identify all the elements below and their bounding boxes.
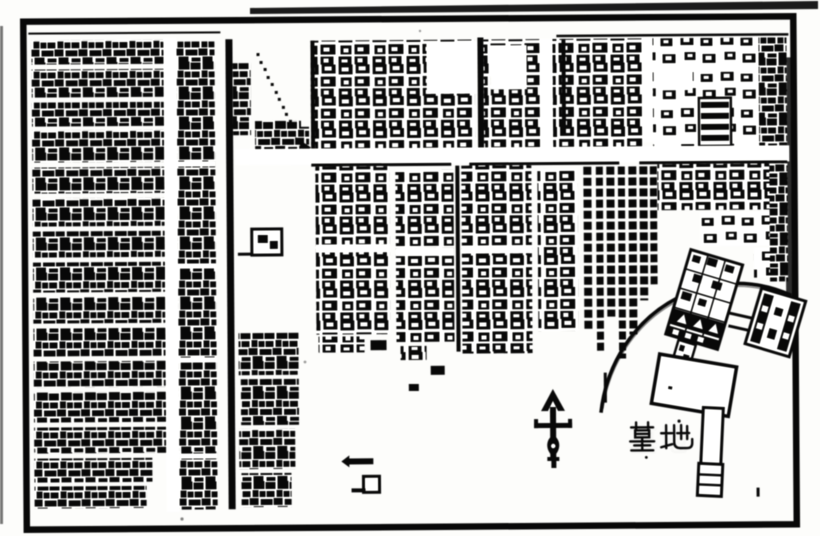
city-block (401, 346, 427, 360)
city-block-row (32, 102, 164, 127)
wall-fragment (757, 488, 760, 497)
ruin-marker-dash (347, 458, 373, 464)
city-map-drawing: 墓地 (0, 0, 820, 536)
city-block-row (33, 328, 165, 357)
city-block-row (32, 69, 164, 98)
page-edge-left (0, 26, 3, 524)
street-wall (310, 41, 315, 149)
cemetery-label-text: 墓地 (627, 424, 688, 459)
city-block-row (34, 361, 166, 388)
city-block-row (33, 231, 165, 258)
cemetery-label: 墓地 (627, 419, 692, 459)
lone-building (238, 229, 282, 255)
city-block (461, 165, 532, 353)
city-block (241, 379, 299, 425)
left-district (31, 37, 217, 512)
city-block-row (31, 40, 163, 65)
city-block-column (176, 41, 217, 509)
upper-district (310, 35, 787, 148)
cross-street (642, 38, 653, 142)
ladder-building (699, 98, 731, 146)
dotted-path (256, 53, 291, 123)
city-block (233, 63, 252, 135)
street-side-blocks (233, 63, 314, 508)
middle-district (315, 164, 655, 404)
city-block (238, 333, 298, 375)
city-block (657, 163, 787, 210)
city-block (318, 336, 364, 352)
street-wall (561, 39, 566, 135)
city-block-row (34, 392, 166, 423)
city-block-row (33, 198, 165, 227)
ruin-markers (341, 455, 379, 492)
cross-street (539, 39, 553, 147)
city-block-row (33, 262, 165, 293)
city-block-row (35, 486, 147, 509)
city-block-row (33, 297, 165, 324)
city-block (537, 169, 578, 331)
page-edge-top (250, 1, 818, 14)
ruin-marker-box (363, 476, 379, 492)
scanned-city-map-page: 墓地 (0, 0, 820, 536)
street-wall (455, 166, 460, 352)
street-wall (477, 37, 484, 147)
city-block (241, 473, 291, 507)
frame-inner-line-right (556, 34, 788, 36)
frame-inner-line-left (28, 32, 220, 33)
city-block-row (32, 167, 164, 194)
city-block-row (34, 458, 152, 483)
city-block (758, 37, 787, 145)
striped-blocks (587, 166, 654, 358)
city-block (769, 163, 788, 281)
city-block-row (32, 130, 164, 163)
city-block (239, 429, 295, 469)
north-arrow-icon (534, 389, 573, 468)
corridor-south (697, 407, 725, 496)
city-block-row (34, 427, 166, 454)
